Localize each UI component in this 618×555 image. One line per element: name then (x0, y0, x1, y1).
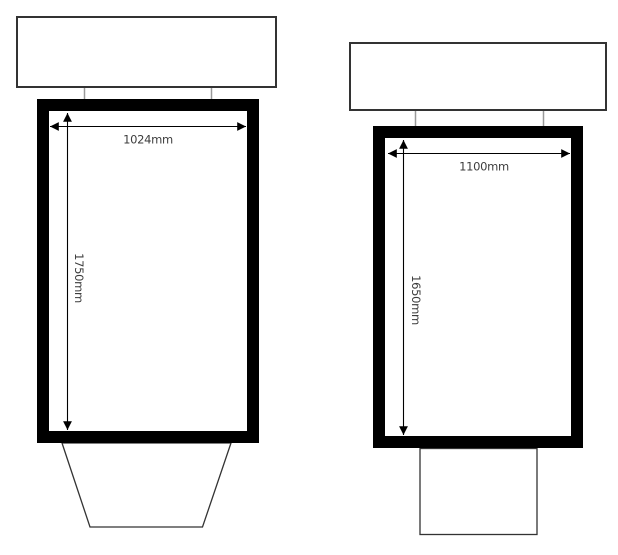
left-trapezoid-base (62, 443, 231, 527)
right-height-dimension-label: 1650mm (409, 275, 421, 325)
left-header-box (17, 17, 276, 87)
left-height-dimension-label: 1750mm (72, 253, 84, 303)
right-header-box (350, 43, 606, 110)
left-width-dimension-label: 1024mm (123, 134, 173, 146)
right-width-dimension-label: 1100mm (459, 161, 509, 173)
left-unit-drawing (17, 17, 276, 527)
drawing-shapes (0, 0, 618, 555)
right-rectangle-base (420, 449, 537, 535)
drawing-canvas: 1024mm 1750mm 1100mm 1650mm (0, 0, 618, 555)
right-unit-drawing (350, 43, 606, 535)
